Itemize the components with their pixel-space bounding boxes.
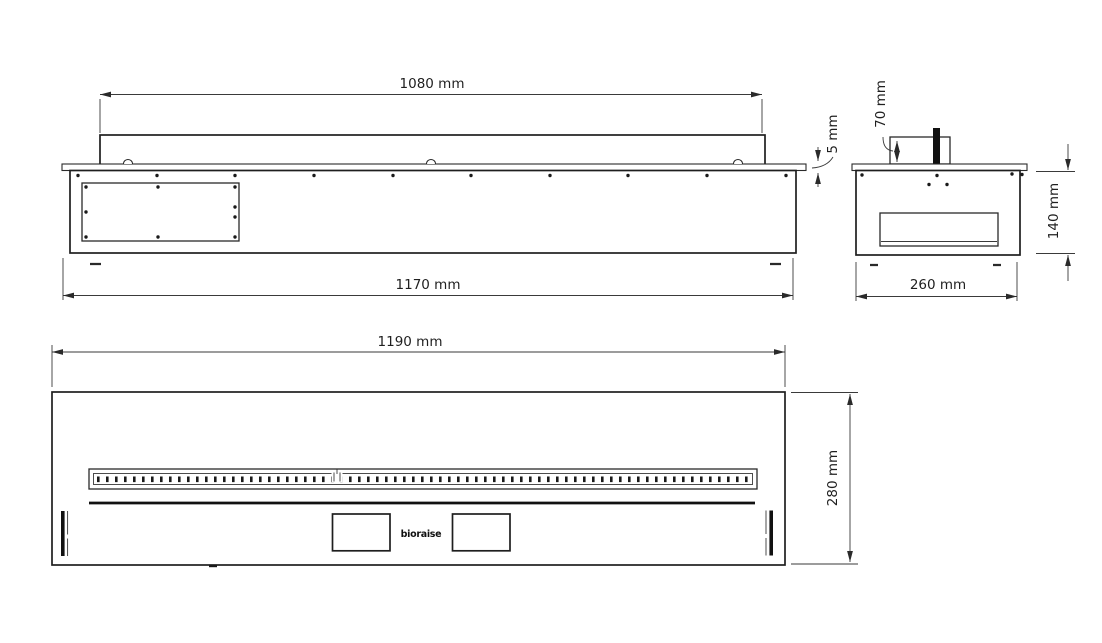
regulator-knob [933, 128, 940, 166]
drawing-canvas: 1080 mm [0, 0, 1102, 643]
dimension-label-1190: 1190 mm [378, 334, 443, 350]
screw-dot [945, 183, 948, 186]
control-box-right [453, 514, 511, 551]
screw-dot [935, 174, 938, 177]
screw-dot [927, 183, 930, 186]
screw-dot [548, 174, 551, 177]
screw-dot [312, 174, 315, 177]
panel-screw-dot [233, 235, 236, 238]
hinge-bar [61, 511, 65, 556]
screw-dot [76, 174, 79, 177]
screw-dot [233, 174, 236, 177]
screw-dot [155, 174, 158, 177]
dimension-front-burner-width: 1080 mm [100, 76, 762, 133]
dimension-label-1080: 1080 mm [400, 76, 465, 92]
mounting-plate-side [852, 164, 1027, 171]
panel-screw-dot [84, 210, 87, 213]
dimension-regulator-height: 70 mm [873, 80, 897, 162]
panel-screw-dot [84, 235, 87, 238]
dimension-label-5mm: 5 mm [825, 114, 841, 153]
technical-drawing-page: 1080 mm [0, 0, 1102, 643]
dimension-plan-width: 1190 mm [52, 334, 785, 387]
control-box-left [333, 514, 391, 551]
brand-logo: bioraise [401, 529, 442, 540]
dimension-plan-depth: 280 mm [791, 393, 858, 565]
dimension-body-height: 140 mm [1036, 144, 1075, 281]
panel-screw-dot [233, 205, 236, 208]
dimension-label-260: 260 mm [910, 277, 966, 293]
extension-lines [100, 99, 762, 133]
front-view: 1080 mm [62, 76, 841, 300]
clip-center [427, 160, 436, 165]
panel-screw-dot [233, 185, 236, 188]
screw-dot [1010, 172, 1013, 175]
leader-curve [883, 137, 893, 151]
dimension-label-280: 280 mm [825, 450, 841, 506]
screw-dot [1020, 173, 1023, 176]
screw-dot [391, 174, 394, 177]
dimension-side-depth: 260 mm [856, 262, 1017, 301]
screw-dot [626, 174, 629, 177]
panel-screw-dot [84, 185, 87, 188]
panel-screw-dot [233, 215, 236, 218]
panel-screw-dot [156, 235, 159, 238]
side-view: 70 mm 2 [852, 80, 1075, 301]
screw-dot [469, 174, 472, 177]
extension-lines [52, 345, 785, 387]
dimension-label-70mm: 70 mm [873, 80, 889, 128]
screw-dot [784, 174, 787, 177]
dimension-front-overall-width: 1170 mm [63, 258, 793, 300]
screw-dot [860, 173, 863, 176]
dimension-plate-thickness: 5 mm [812, 114, 841, 187]
dimension-label-140mm: 140 mm [1046, 183, 1062, 239]
burner-top-side [890, 137, 950, 164]
mounting-plate-front [62, 164, 806, 171]
clip-left [124, 160, 133, 165]
screw-dot [705, 174, 708, 177]
hinge-bar [769, 511, 773, 556]
panel-screw-dot [156, 185, 159, 188]
leader-curve [812, 157, 833, 168]
plan-view: 1190 mm bioraise [52, 334, 858, 566]
dimension-label-1170: 1170 mm [396, 277, 461, 293]
clip-right [734, 160, 743, 165]
